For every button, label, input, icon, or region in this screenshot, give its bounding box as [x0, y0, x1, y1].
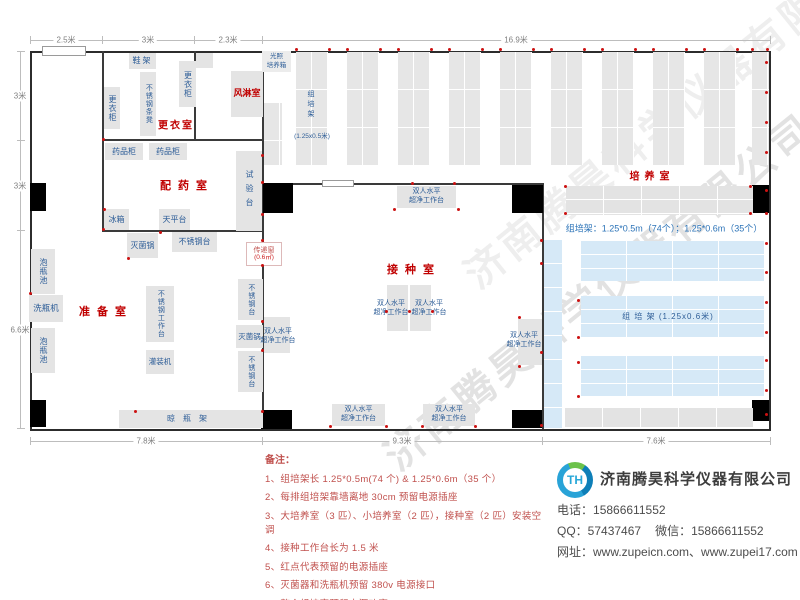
cabinet-box — [196, 53, 213, 68]
door-opening — [512, 410, 542, 428]
power-outlet-dot — [328, 48, 331, 51]
locker: 更衣柜 — [179, 61, 196, 107]
power-outlet-dot — [765, 301, 768, 304]
power-outlet-dot — [540, 262, 543, 265]
rack-label-size: (1.25x0.5米) — [293, 130, 331, 140]
window-symbol — [42, 46, 86, 56]
blue-rack-vertical — [544, 240, 562, 428]
power-outlet-dot — [540, 239, 543, 242]
gray-rack-bottom — [565, 408, 753, 427]
interior-wall — [102, 139, 264, 141]
dim-left-2: 3米 — [11, 181, 29, 192]
blue-rack-group — [581, 241, 765, 281]
culture-rack-column — [551, 52, 583, 165]
rack-spec-text: 组培架：1.25*0.5m（74个）；1.25*0.6m（35个） — [566, 222, 763, 235]
stainless-workbench: 不锈钢工作台 — [146, 286, 174, 342]
pass-window: 传递窗 (0.6㎡) — [246, 242, 282, 266]
test-bench: 试验台 — [236, 151, 262, 231]
notes-block: 备注： 1、组培架长 1.25*0.5m(74 个) & 1.25*0.6m（3… — [265, 451, 545, 600]
dim-top-2: 3米 — [139, 35, 157, 46]
balance-table: 天平台 — [159, 209, 190, 230]
power-outlet-dot — [703, 48, 706, 51]
clean-bench-label: 双人水平 超净工作台 — [412, 299, 447, 317]
door-opening — [261, 410, 292, 429]
company-phone-row: 电话：15866611552 — [557, 501, 666, 518]
soak-pool: 泡瓶池 — [31, 249, 55, 294]
power-outlet-dot — [329, 425, 332, 428]
room-label-changing: 更衣室 — [158, 117, 194, 132]
qq-label: QQ： — [557, 524, 588, 538]
medicine-cabinet: 药品柜 — [105, 143, 143, 160]
note-item: 5、红点代表预留的电源插座 — [265, 559, 545, 573]
pass-window-size: (0.6㎡) — [254, 254, 274, 261]
company-qq-row: QQ：57437467微信：15866611552 — [557, 522, 764, 539]
power-outlet-dot — [749, 212, 752, 215]
power-outlet-dot — [431, 310, 434, 313]
dim-left-1: 3米 — [11, 91, 29, 102]
power-outlet-dot — [430, 48, 433, 51]
power-outlet-dot — [102, 138, 105, 141]
clean-bench-label: 双人水平 超净工作台 — [261, 327, 296, 345]
room-label-culture: 培养室 — [630, 168, 675, 183]
note-item: 6、灭菌器和洗瓶机预留 380v 电源接口 — [265, 577, 545, 591]
power-outlet-dot — [448, 48, 451, 51]
dim-top-4: 16.9米 — [501, 35, 531, 46]
power-outlet-dot — [765, 413, 768, 416]
phone-label: 电话： — [557, 503, 593, 517]
power-outlet-dot — [346, 48, 349, 51]
power-outlet-dot — [261, 213, 264, 216]
clean-bench: 双人水平 超净工作台 — [397, 186, 456, 208]
culture-rack-column — [752, 52, 769, 165]
power-outlet-dot — [765, 61, 768, 64]
power-outlet-dot — [393, 208, 396, 211]
power-outlet-dot — [765, 359, 768, 362]
power-outlet-dot — [583, 48, 586, 51]
power-outlet-dot — [518, 365, 521, 368]
sterilizer: 灭菌锅 — [127, 233, 158, 258]
bottle-washer: 洗瓶机 — [29, 295, 63, 322]
clean-bench-label: 双人水平 超净工作台 — [374, 299, 409, 317]
power-outlet-dot — [577, 299, 580, 302]
power-outlet-dot — [408, 310, 411, 313]
drying-rack: 晾瓶架 — [119, 410, 263, 428]
medicine-cabinet: 药品柜 — [149, 143, 187, 160]
floor-plan-canvas: 济南腾昊科学仪器有限公司 济南腾昊科学仪器有限公司 2.5米 3米 2.3米 1… — [0, 0, 800, 600]
power-outlet-dot — [736, 48, 739, 51]
power-outlet-dot — [261, 349, 264, 352]
notes-title: 备注： — [265, 451, 545, 466]
clean-bench-label: 双人水平 超净工作台 — [507, 331, 542, 349]
power-outlet-dot — [261, 264, 264, 267]
note-item: 7、整个组培室预留电源功率 > 300kw — [265, 596, 545, 600]
stainless-table: 不锈钢台 — [238, 279, 263, 320]
culture-rack-column — [347, 52, 379, 165]
power-outlet-dot — [397, 48, 400, 51]
company-name: 济南腾昊科学仪器有限公司 — [600, 468, 792, 489]
power-outlet-dot — [457, 208, 460, 211]
power-outlet-dot — [421, 425, 424, 428]
power-outlet-dot — [577, 361, 580, 364]
culture-rack-column — [602, 52, 634, 165]
blue-rack-label: 组 培 架 (1.25x0.6米) — [622, 312, 714, 322]
room-label-inoculation: 接种室 — [387, 261, 441, 277]
locker: 更衣柜 — [104, 87, 120, 129]
dim-top-1: 2.5米 — [53, 35, 78, 46]
rack-label-vertical: 组培架 — [305, 90, 315, 120]
note-item: 3、大培养室（3 匹）、小培养室（2 匹），接种室（2 匹）安装空调 — [265, 508, 545, 536]
door-opening — [263, 183, 293, 213]
stainless-bench: 不锈钢条凳 — [140, 72, 156, 136]
power-outlet-dot — [385, 425, 388, 428]
stainless-table: 不锈钢台 — [238, 351, 263, 392]
light-incubator: 光照 培养箱 — [262, 51, 291, 72]
power-outlet-dot — [766, 48, 769, 51]
company-logo-text: TH — [557, 462, 593, 498]
power-outlet-dot — [481, 48, 484, 51]
filling-machine: 灌装机 — [146, 350, 174, 374]
door-opening — [30, 183, 46, 211]
power-outlet-dot — [103, 208, 106, 211]
culture-rack-column — [449, 52, 481, 165]
room-label-prep: 准备室 — [79, 303, 133, 319]
stainless-table: 不锈钢台 — [172, 232, 217, 252]
power-outlet-dot — [550, 48, 553, 51]
power-outlet-dot — [261, 154, 264, 157]
company-logo: TH — [557, 462, 593, 498]
culture-rack-column — [264, 103, 282, 165]
power-outlet-dot — [765, 121, 768, 124]
shoe-rack: 鞋架 — [129, 53, 156, 69]
power-outlet-dot — [765, 189, 768, 192]
power-outlet-dot — [652, 48, 655, 51]
power-outlet-dot — [749, 185, 752, 188]
qq-value: 57437467 — [588, 524, 641, 538]
power-outlet-dot — [765, 91, 768, 94]
interior-wall — [102, 51, 104, 232]
power-outlet-dot — [379, 48, 382, 51]
dimension-line-left — [20, 51, 21, 429]
power-outlet-dot — [499, 48, 502, 51]
power-outlet-dot — [474, 425, 477, 428]
power-outlet-dot — [577, 395, 580, 398]
web-value: www.zupeicn.com、www.zupei17.com — [593, 545, 798, 559]
power-outlet-dot — [685, 48, 688, 51]
blue-rack-group — [581, 356, 765, 396]
culture-rack-column — [653, 52, 685, 165]
door-opening — [30, 400, 46, 427]
power-outlet-dot — [134, 410, 137, 413]
culture-rack-horizontal — [566, 186, 753, 215]
interior-wall — [262, 183, 544, 185]
power-outlet-dot — [564, 212, 567, 215]
company-web-row: 网址：www.zupeicn.com、www.zupei17.com — [557, 543, 798, 560]
power-outlet-dot — [765, 151, 768, 154]
power-outlet-dot — [261, 181, 264, 184]
room-label-dispensing: 配药室 — [160, 177, 214, 193]
web-label: 网址： — [557, 545, 593, 559]
power-outlet-dot — [564, 185, 567, 188]
phone-value: 15866611552 — [593, 503, 666, 517]
power-outlet-dot — [261, 239, 264, 242]
door-opening — [752, 400, 769, 421]
note-item: 2、每排组培架靠墙离地 30cm 预留电源插座 — [265, 489, 545, 503]
power-outlet-dot — [601, 48, 604, 51]
dim-bottom-2: 9.3米 — [389, 436, 414, 447]
dim-bottom-1: 7.8米 — [133, 436, 158, 447]
fridge: 冰箱 — [104, 209, 129, 230]
culture-rack-column — [704, 52, 736, 165]
power-outlet-dot — [29, 292, 32, 295]
power-outlet-dot — [127, 257, 130, 260]
power-outlet-dot — [411, 182, 414, 185]
power-outlet-dot — [295, 48, 298, 51]
dim-top-3: 2.3米 — [215, 35, 240, 46]
power-outlet-dot — [540, 424, 543, 427]
power-outlet-dot — [634, 48, 637, 51]
power-outlet-dot — [261, 410, 264, 413]
note-item: 1、组培架长 1.25*0.5m(74 个) & 1.25*0.6m（35 个） — [265, 471, 545, 485]
air-shower-room-box: 风淋室 — [231, 71, 263, 117]
window-symbol — [322, 180, 354, 187]
power-outlet-dot — [751, 48, 754, 51]
culture-rack-column — [500, 52, 532, 165]
power-outlet-dot — [102, 228, 105, 231]
power-outlet-dot — [159, 231, 162, 234]
power-outlet-dot — [765, 242, 768, 245]
power-outlet-dot — [532, 48, 535, 51]
door-opening — [512, 185, 543, 213]
power-outlet-dot — [540, 351, 543, 354]
wechat-value: 15866611552 — [691, 524, 764, 538]
dim-left-3: 6.6米 — [7, 325, 32, 336]
wechat-label: 微信： — [655, 524, 691, 538]
note-item: 4、接种工作台长为 1.5 米 — [265, 540, 545, 554]
power-outlet-dot — [453, 182, 456, 185]
dim-bottom-3: 7.6米 — [643, 436, 668, 447]
clean-bench: 双人水平 超净工作台 — [332, 404, 385, 426]
clean-bench: 双人水平 超净工作台 — [423, 404, 475, 426]
power-outlet-dot — [518, 316, 521, 319]
power-outlet-dot — [765, 271, 768, 274]
power-outlet-dot — [385, 310, 388, 313]
power-outlet-dot — [765, 212, 768, 215]
power-outlet-dot — [261, 320, 264, 323]
power-outlet-dot — [765, 389, 768, 392]
sterilizer: 灭菌锅 — [236, 325, 263, 348]
power-outlet-dot — [765, 331, 768, 334]
power-outlet-dot — [577, 336, 580, 339]
culture-rack-column — [398, 52, 430, 165]
soak-pool: 泡瓶池 — [31, 328, 55, 373]
